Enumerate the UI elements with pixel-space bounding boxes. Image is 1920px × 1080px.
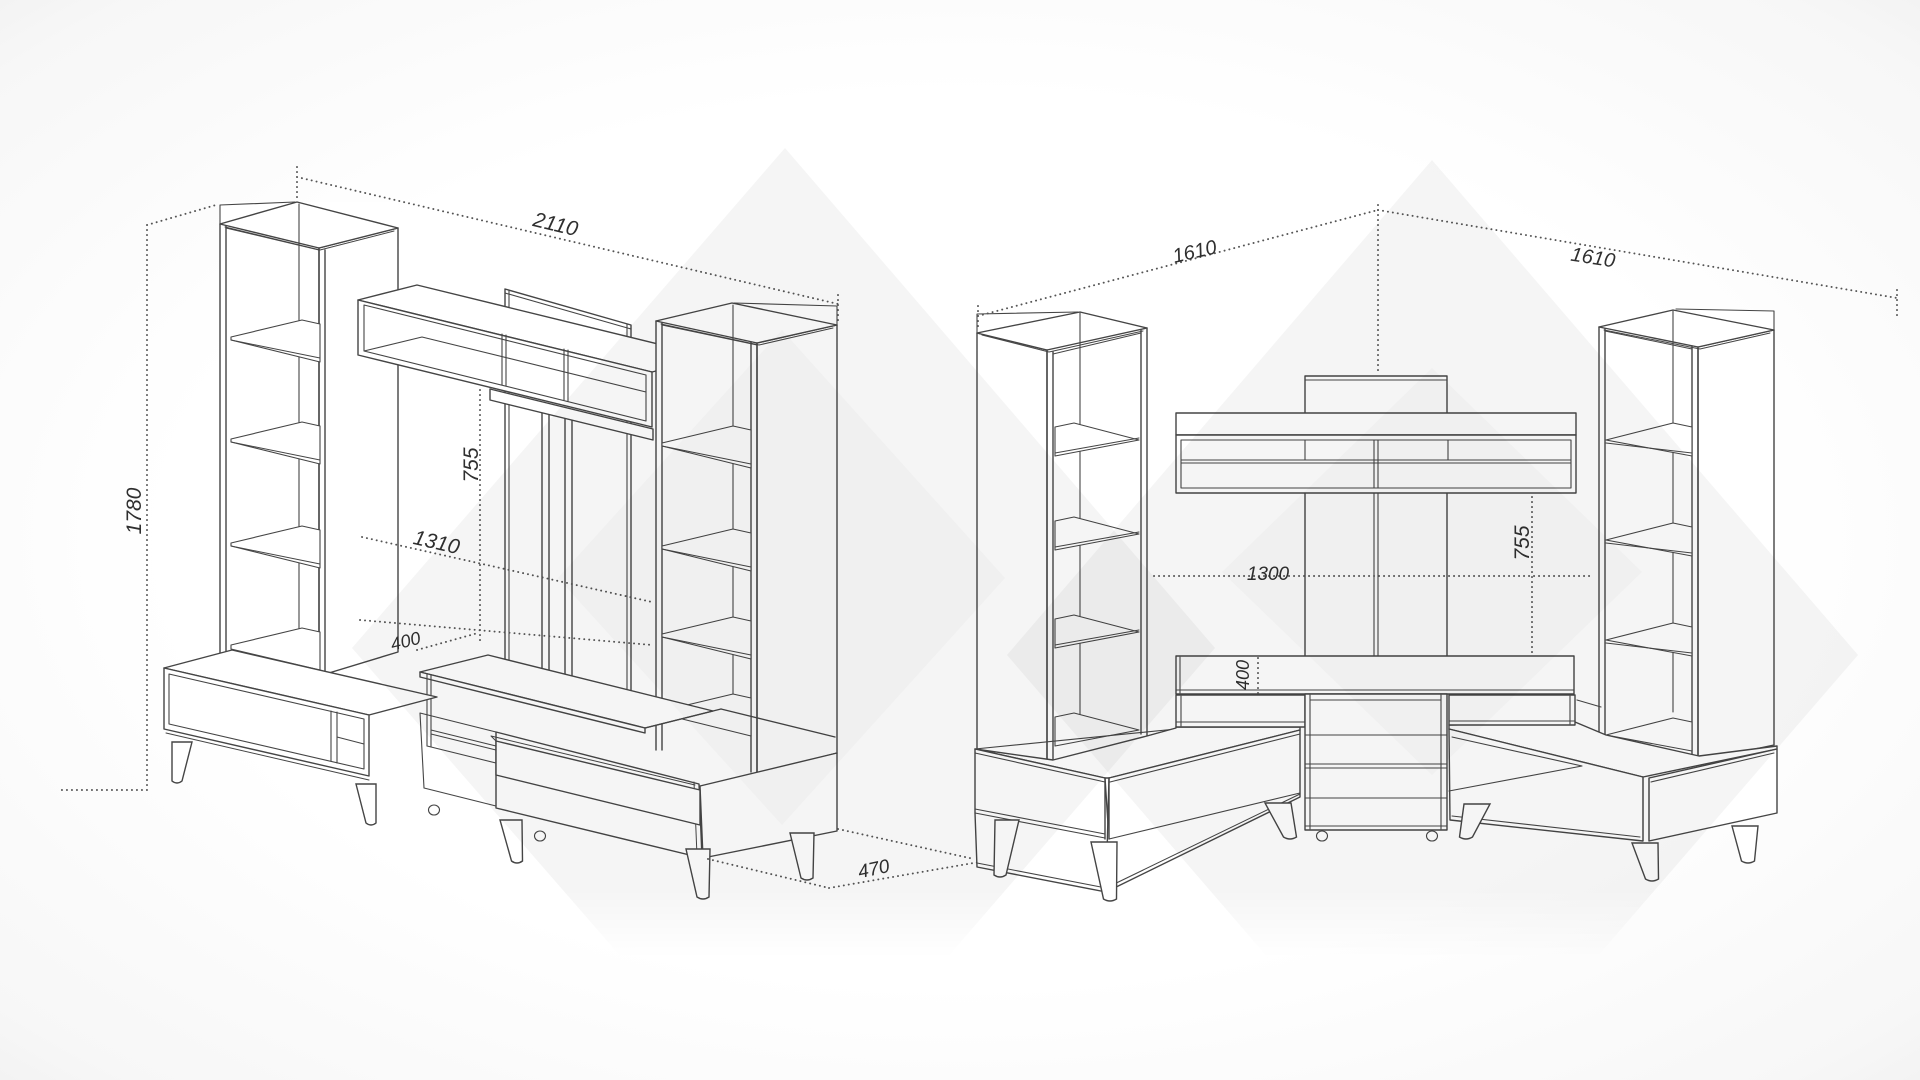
svg-text:1780: 1780 (123, 487, 146, 534)
svg-text:755: 755 (460, 447, 483, 482)
